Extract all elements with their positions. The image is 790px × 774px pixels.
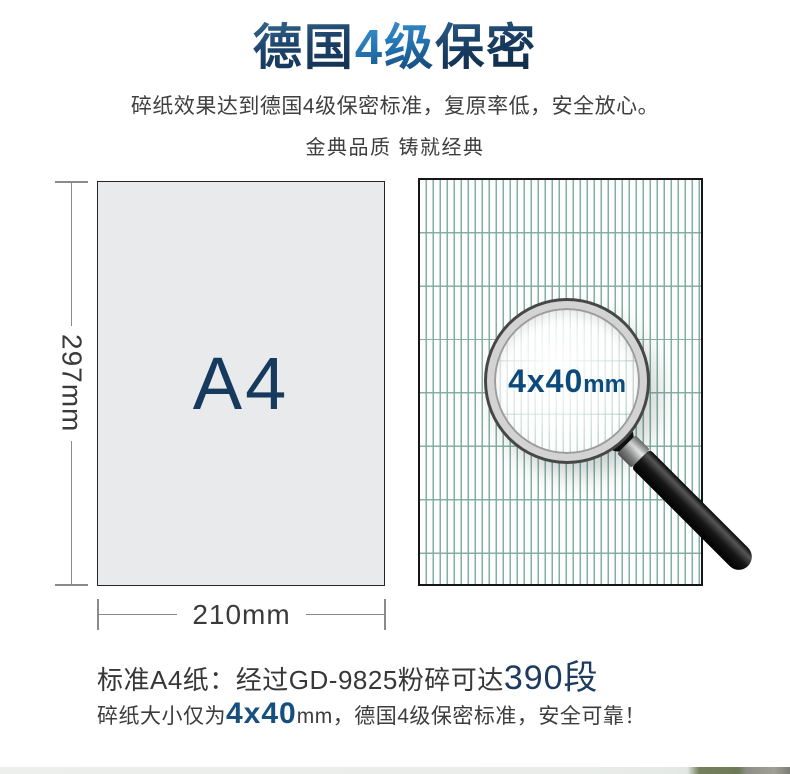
title-part-country: 德国: [253, 21, 355, 75]
shred-size-value: 4x40: [508, 363, 583, 400]
spec-line-1: 标准A4纸：经过GD-9825粉碎可达390段: [97, 650, 599, 699]
spec-line-2-text: 碎纸大小仅为: [97, 700, 226, 730]
a4-sheet: A4: [97, 181, 385, 586]
dimension-cap-bottom: [55, 584, 88, 586]
width-dimension: 210mm: [97, 599, 386, 630]
dimension-line-left: [99, 614, 177, 616]
tagline: 金典品质 铸就经典: [0, 131, 790, 160]
next-section-edge: [0, 767, 790, 774]
title-part-level: 4级: [355, 21, 435, 75]
dimension-line-lower: [71, 441, 73, 584]
height-dimension-label: 297mm: [56, 334, 88, 432]
dimension-line-upper: [71, 183, 73, 326]
dimension-line-right: [306, 614, 384, 616]
spec-line-2-suffix: mm，德国4级保密标准，安全可靠！: [297, 700, 646, 730]
spec-line-1-text: 标准A4纸：经过GD-9825粉碎可达: [97, 660, 504, 697]
a4-label: A4: [193, 341, 290, 426]
promo-section: 德国4级保密 碎纸效果达到德国4级保密标准，复原率低，安全放心。 金典品质 铸就…: [0, 0, 790, 774]
title-part-secrecy: 保密: [435, 21, 537, 75]
spec-line-2-highlight: 4x40: [226, 697, 297, 731]
page-title: 德国4级保密: [0, 20, 790, 76]
magnifier-icon: 4x40mm: [487, 301, 647, 461]
dimension-cap-right: [384, 599, 386, 630]
shred-size-unit: mm: [583, 371, 626, 399]
width-dimension-label: 210mm: [192, 599, 290, 631]
spec-line-2: 碎纸大小仅为4x40mm，德国4级保密标准，安全可靠！: [97, 697, 646, 731]
shred-size-label: 4x40mm: [508, 363, 626, 400]
subtitle: 碎纸效果达到德国4级保密标准，复原率低，安全放心。: [0, 90, 790, 120]
height-dimension: 297mm: [55, 181, 88, 586]
spec-line-1-highlight: 390段: [504, 650, 599, 699]
